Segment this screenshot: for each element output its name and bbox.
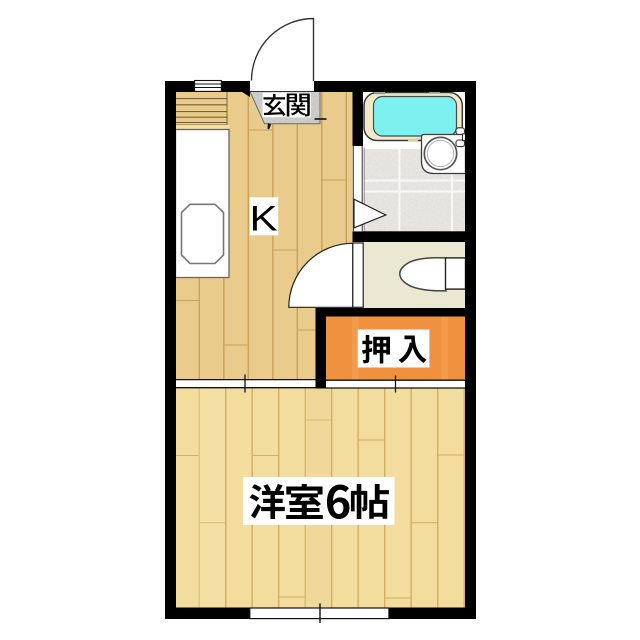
svg-text:K: K xyxy=(250,200,278,239)
